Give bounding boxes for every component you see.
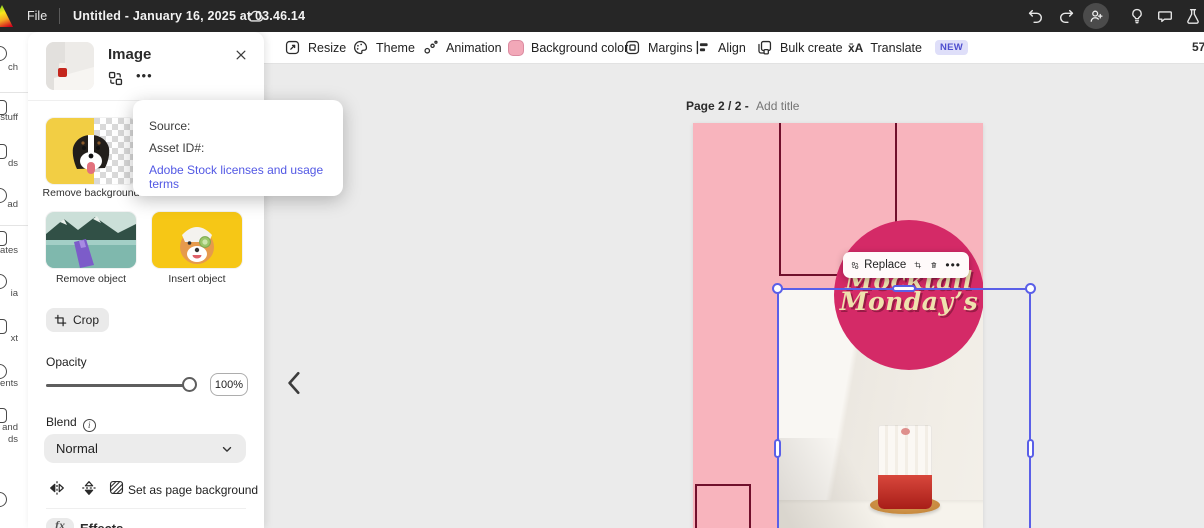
more-options-icon[interactable]: •••	[945, 258, 961, 272]
theme-button[interactable]: Theme	[352, 32, 415, 63]
remove-object-label: Remove object	[31, 273, 151, 285]
photo-candle-glass	[878, 425, 932, 509]
bulk-create-button[interactable]: Bulk create	[756, 32, 843, 63]
panel-replace-icon[interactable]	[107, 70, 124, 87]
rail-divider	[0, 225, 28, 226]
animation-button[interactable]: Animation	[422, 32, 502, 63]
source-label: Source:	[149, 119, 190, 133]
add-title-placeholder[interactable]: Add title	[756, 99, 799, 113]
panel-more-icon[interactable]: •••	[136, 68, 153, 83]
media-icon[interactable]	[0, 274, 7, 289]
translate-button[interactable]: x̄A Translate NEW	[848, 32, 968, 63]
rail-label-upload[interactable]: ad	[0, 199, 18, 210]
grids-icon[interactable]	[0, 408, 7, 423]
crop-icon	[54, 314, 67, 327]
align-button[interactable]: Align	[694, 32, 746, 63]
insert-object-label: Insert object	[137, 273, 257, 285]
animation-icon	[422, 39, 439, 56]
rail-label-media[interactable]: ia	[0, 288, 18, 299]
adobe-stock-license-link[interactable]: Adobe Stock licenses and usage terms	[149, 163, 343, 191]
replace-button[interactable]: Replace	[864, 259, 906, 271]
asset-id-label: Asset ID#:	[149, 141, 204, 155]
flip-horizontal-icon[interactable]	[48, 479, 66, 497]
crop-icon[interactable]	[914, 258, 922, 272]
mocktail-badge-circle[interactable]: Mocktail Monday’s	[834, 220, 983, 370]
chevron-left-icon	[284, 370, 306, 396]
resize-button[interactable]: Resize	[284, 32, 346, 63]
templates-icon[interactable]	[0, 231, 7, 246]
app-logo-icon[interactable]	[0, 5, 13, 27]
bulk-create-icon	[756, 39, 773, 56]
translate-icon: x̄A	[848, 41, 863, 55]
file-menu[interactable]: File	[27, 9, 47, 23]
blend-dropdown[interactable]: Normal	[44, 434, 246, 463]
rail-divider	[0, 92, 28, 93]
image-float-toolbar: Replace •••	[843, 252, 969, 278]
effects-label[interactable]: Effects	[80, 521, 123, 528]
remove-background-tile[interactable]	[46, 118, 136, 184]
set-page-background-label[interactable]: Set as page background	[128, 483, 258, 497]
rail-label-elements[interactable]: ents	[0, 378, 18, 389]
ideas-lightbulb-icon[interactable]	[1128, 7, 1146, 25]
topbar-divider	[59, 8, 60, 24]
adobe-express-app: File Untitled - January 16, 2025 at 03.4…	[0, 0, 1204, 528]
selection-handle-top-left[interactable]	[772, 283, 783, 294]
rail-label-grids-1[interactable]: and	[0, 422, 18, 433]
panel-divider	[46, 508, 246, 509]
decor-frame-bottom[interactable]	[695, 484, 751, 528]
align-icon	[694, 39, 711, 56]
elements-icon[interactable]	[0, 364, 7, 379]
redo-icon[interactable]	[1058, 7, 1076, 25]
rail-label-search[interactable]: ch	[0, 62, 18, 73]
page-indicator: Page 2 / 2 - Add title	[686, 99, 799, 113]
image-source-popup: Source: Asset ID#: Adobe Stock licenses …	[133, 100, 343, 196]
design-page[interactable]: Mocktail Monday’s	[693, 123, 983, 528]
brands-icon[interactable]	[0, 144, 7, 159]
info-icon[interactable]: i	[83, 419, 96, 432]
opacity-value[interactable]: 100%	[210, 373, 248, 396]
set-page-background-icon[interactable]	[108, 479, 125, 496]
document-title[interactable]: Untitled - January 16, 2025 at 03.46.14	[73, 9, 305, 23]
selection-handle-top-right[interactable]	[1025, 283, 1036, 294]
add-person-icon	[1088, 8, 1104, 24]
blend-label: Blendi	[46, 415, 96, 432]
search-icon[interactable]	[0, 46, 7, 61]
opacity-slider-thumb[interactable]	[182, 377, 197, 392]
selection-handle-mid-left[interactable]	[774, 439, 781, 458]
text-icon[interactable]	[0, 319, 7, 334]
panel-title: Image	[108, 46, 151, 63]
margins-icon	[624, 39, 641, 56]
close-icon	[234, 48, 248, 62]
new-badge: NEW	[935, 40, 968, 55]
remove-object-tile[interactable]	[46, 212, 136, 268]
opacity-label: Opacity	[46, 355, 87, 369]
share-add-people-button[interactable]	[1083, 3, 1109, 29]
background-color-swatch-icon	[508, 40, 524, 56]
undo-icon[interactable]	[1026, 7, 1044, 25]
resize-icon	[284, 39, 301, 56]
flip-vertical-icon[interactable]	[80, 479, 98, 497]
rail-label-templates[interactable]: ates	[0, 245, 18, 256]
replace-icon[interactable]	[851, 258, 859, 273]
chevron-down-icon	[220, 442, 234, 456]
zoom-level[interactable]: 57%	[1192, 40, 1204, 54]
cloud-sync-icon[interactable]	[246, 7, 264, 25]
delete-trash-icon[interactable]	[930, 258, 938, 272]
image-thumbnail[interactable]	[46, 42, 94, 90]
rail-label-your-stuff[interactable]: stuff	[0, 112, 18, 123]
previous-page-button[interactable]	[284, 368, 312, 398]
top-bar: File Untitled - January 16, 2025 at 03.4…	[0, 0, 1204, 32]
rail-label-brands[interactable]: ds	[0, 158, 18, 169]
more-rail-icon[interactable]	[0, 492, 7, 507]
close-panel-button[interactable]	[230, 44, 252, 66]
rail-label-grids-2[interactable]: ds	[0, 434, 18, 445]
left-nav-rail: ch stuff ds ad ates ia xt ents and ds	[0, 32, 28, 528]
background-color-button[interactable]: Background color	[508, 32, 628, 63]
margins-button[interactable]: Margins	[624, 32, 692, 63]
selection-handle-mid-right[interactable]	[1027, 439, 1034, 458]
insert-object-tile[interactable]	[152, 212, 242, 268]
beta-flask-icon[interactable]	[1184, 7, 1202, 25]
effects-icon[interactable]: fx	[46, 518, 74, 528]
page-number-label: Page 2 / 2 -	[686, 99, 749, 113]
selection-handle-top-center[interactable]	[892, 285, 916, 292]
opacity-slider[interactable]	[46, 384, 196, 387]
comments-icon[interactable]	[1156, 7, 1174, 25]
theme-palette-icon	[352, 39, 369, 56]
rail-label-text[interactable]: xt	[0, 333, 18, 344]
crop-button[interactable]: Crop	[46, 308, 109, 332]
